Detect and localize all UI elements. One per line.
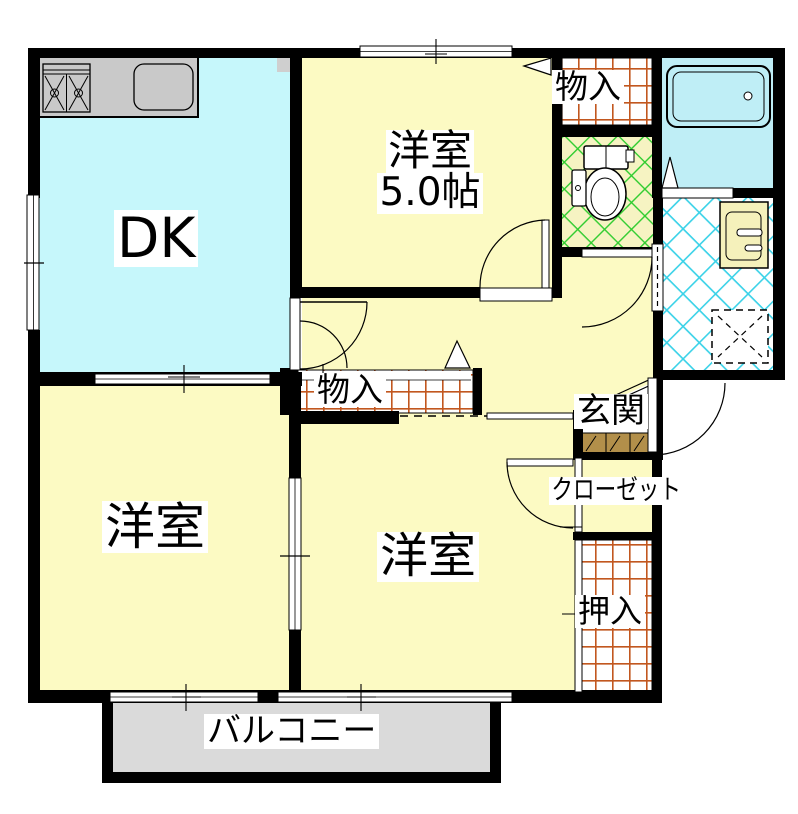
storage-top-label: 物入 (552, 70, 624, 104)
entrance-step (582, 433, 655, 453)
entrance-label: 玄関 (574, 394, 648, 429)
floor-plan: DK 洋室 5.0帖 物入 物入 玄関 クローゼット 押入 洋室 洋室 バルコニ… (0, 0, 798, 814)
wall-washroom-left-b (653, 310, 663, 372)
washbasin-icon (720, 202, 768, 268)
bedroom-top-size: 5.0帖 (377, 173, 482, 214)
bedroom-left-label: 洋室 (102, 501, 208, 553)
floor-plan-drawing (0, 0, 798, 814)
storage-hall-label: 物入 (314, 373, 386, 407)
wall-storage-hall-left (280, 368, 298, 415)
bath-threshold (662, 188, 733, 198)
wall-closet-bottom (573, 532, 662, 540)
wall-right (773, 58, 785, 380)
wall-storage-toilet (552, 125, 662, 137)
wall-bath-threshold-side (733, 188, 773, 198)
wall-washroom-left-a (653, 198, 663, 245)
wall-step-bottom (573, 452, 662, 460)
dk-label: DK (114, 210, 198, 267)
wall-storage-hall-right (473, 368, 482, 415)
wall-washroom-bottom (653, 370, 785, 380)
kitchen-counter (37, 57, 198, 117)
balcony-label: バルコニー (204, 714, 379, 749)
wall-storage-hall-bottom (289, 411, 399, 424)
wall-left-upper (28, 58, 40, 198)
wall-dk-right (290, 57, 302, 298)
bedroom-top-label: 洋室 5.0帖 (344, 130, 516, 214)
washing-machine-pan-icon (712, 310, 768, 363)
closet-label: クローゼット (549, 477, 683, 505)
sliding-door-washroom (652, 244, 663, 311)
wall-bedroom-top-bottom (292, 287, 480, 298)
bedroom-top-name: 洋室 (386, 130, 474, 173)
wall-bath-left (652, 48, 662, 198)
bedroom-center-label: 洋室 (377, 532, 479, 582)
oshiire-label: 押入 (575, 595, 645, 628)
